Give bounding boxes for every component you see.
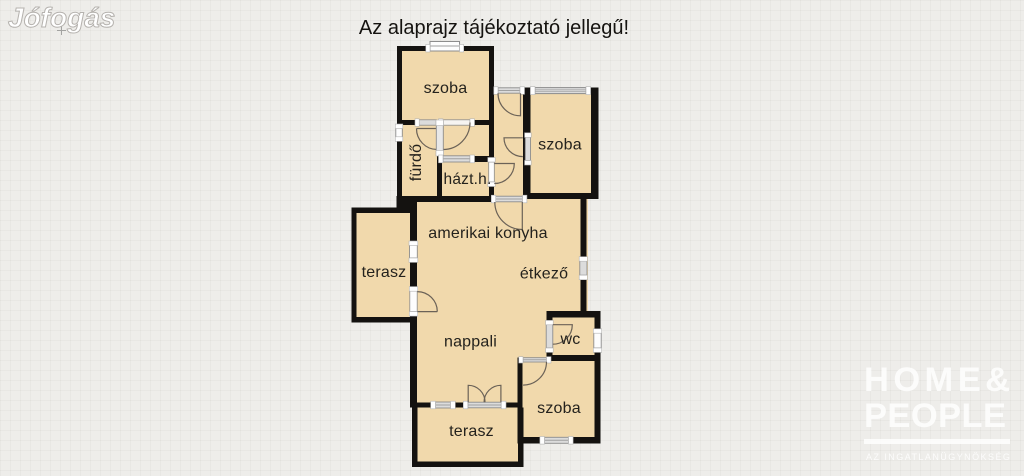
svg-text:szoba: szoba	[538, 137, 582, 154]
svg-text:fürdő: fürdő	[408, 144, 425, 181]
svg-text:szoba: szoba	[537, 400, 581, 417]
svg-text:házt.h.: házt.h.	[444, 171, 492, 188]
svg-text:amerikai konyha: amerikai konyha	[428, 225, 548, 242]
svg-text:wc: wc	[560, 331, 581, 348]
svg-text:szoba: szoba	[424, 80, 468, 97]
svg-text:terasz: terasz	[449, 423, 494, 440]
svg-text:terasz: terasz	[362, 264, 407, 281]
svg-text:étkező: étkező	[520, 266, 568, 283]
svg-text:nappali: nappali	[444, 334, 497, 351]
